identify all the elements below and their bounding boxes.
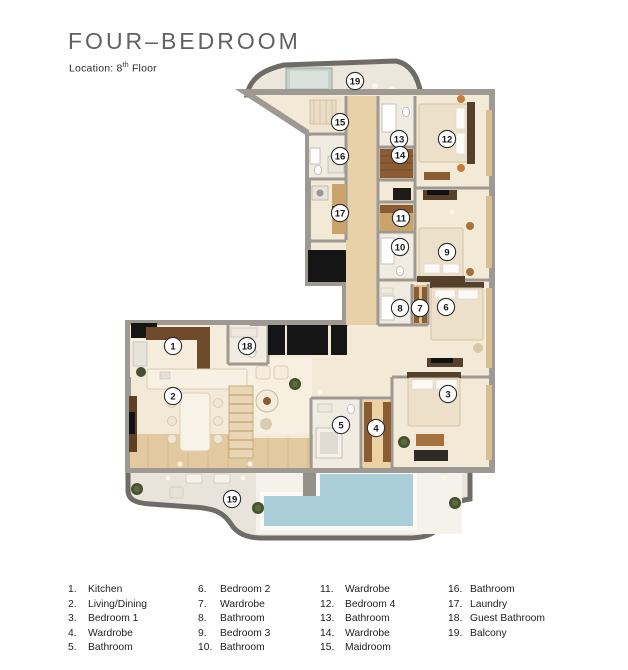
svg-text:13: 13	[394, 134, 405, 145]
legend-item-number: 18.	[448, 612, 470, 627]
sink	[231, 328, 257, 337]
svg-text:16: 16	[335, 151, 346, 162]
svg-text:8: 8	[397, 303, 402, 314]
floor-plan-page: FOUR–BEDROOM Location: 8th Floor	[0, 0, 628, 670]
armchair	[256, 366, 270, 379]
legend-item-number: 16.	[448, 583, 470, 598]
curtain	[486, 110, 492, 176]
armchair	[274, 366, 288, 379]
legend-item-label: Bedroom 2	[220, 583, 270, 598]
legend-item: 14.Wardrobe	[320, 627, 395, 642]
curtain	[486, 385, 492, 460]
legend-item-label: Bedroom 3	[220, 627, 270, 642]
pouf	[260, 418, 272, 430]
legend-item-label: Wardrobe	[220, 598, 265, 613]
legend-item-number: 8.	[198, 612, 220, 627]
svg-text:17: 17	[335, 208, 346, 219]
legend-item-label: Wardrobe	[345, 627, 390, 642]
svg-text:6: 6	[443, 302, 448, 313]
legend-item-label: Wardrobe	[345, 583, 390, 598]
legend-item-label: Wardrobe	[88, 627, 133, 642]
dark-rug	[414, 450, 448, 461]
legend-item-number: 6.	[198, 583, 220, 598]
svg-text:4: 4	[373, 423, 379, 434]
legend-item-number: 12.	[320, 598, 345, 613]
service-shaft	[308, 250, 346, 282]
svg-text:19: 19	[227, 494, 238, 505]
legend-item: 5.Bathroom	[68, 641, 147, 656]
legend-item: 7.Wardrobe	[198, 598, 270, 613]
legend-item-number: 2.	[68, 598, 88, 613]
curtain	[486, 288, 492, 368]
legend-item: 4.Wardrobe	[68, 627, 147, 642]
lounger	[186, 474, 202, 483]
room-marker-16: 16	[331, 147, 348, 164]
lamp	[457, 95, 465, 103]
legend-item: 19.Balcony	[448, 627, 545, 642]
svg-text:3: 3	[445, 389, 450, 400]
legend-item-label: Living/Dining	[88, 598, 147, 613]
legend-item: 3.Bedroom 1	[68, 612, 147, 627]
legend-item: 2.Living/Dining	[68, 598, 147, 613]
room-marker-11: 11	[392, 209, 409, 226]
legend-column-3: 11.Wardrobe12.Bedroom 413.Bathroom14.War…	[320, 583, 395, 656]
legend-item-number: 19.	[448, 627, 470, 642]
room-marker-8: 8	[391, 299, 408, 316]
legend-column-4: 16.Bathroom17.Laundry18.Guest Bathroom19…	[448, 583, 545, 641]
legend-item-label: Maidroom	[345, 641, 391, 656]
legend-item-label: Bathroom	[220, 612, 265, 627]
room-marker-2: 2	[164, 387, 181, 404]
legend-item: 18.Guest Bathroom	[448, 612, 545, 627]
legend-item-label: Bathroom	[220, 641, 265, 656]
svg-text:14: 14	[395, 150, 406, 161]
lounger	[214, 474, 230, 483]
legend-item-number: 4.	[68, 627, 88, 642]
room-marker-3: 3	[439, 385, 456, 402]
legend-item-label: Balcony	[470, 627, 507, 642]
svg-text:19: 19	[350, 76, 361, 87]
svg-text:18: 18	[242, 341, 253, 352]
svg-text:1: 1	[170, 341, 176, 352]
dining-table	[180, 393, 210, 451]
legend-item: 15.Maidroom	[320, 641, 395, 656]
balcony-table	[170, 487, 183, 498]
legend-item: 13.Bathroom	[320, 612, 395, 627]
legend-item: 9.Bedroom 3	[198, 627, 270, 642]
legend-item-number: 10.	[198, 641, 220, 656]
room-marker-15: 15	[331, 113, 348, 130]
room-marker-13: 13	[390, 130, 407, 147]
svg-text:9: 9	[444, 247, 449, 258]
room-marker-14: 14	[391, 146, 408, 163]
curtain	[486, 196, 492, 268]
room-marker-4: 4	[367, 419, 384, 436]
legend-item: 10.Bathroom	[198, 641, 270, 656]
legend-item-label: Bedroom 1	[88, 612, 138, 627]
legend-item-label: Bathroom	[470, 583, 515, 598]
room-marker-19: 19	[346, 72, 363, 89]
room-marker-7: 7	[411, 299, 428, 316]
legend-item-label: Laundry	[470, 598, 507, 613]
legend-item-number: 3.	[68, 612, 88, 627]
legend-item-number: 5.	[68, 641, 88, 656]
legend-item: 12.Bedroom 4	[320, 598, 395, 613]
svg-text:10: 10	[395, 242, 406, 253]
legend-item-label: Bathroom	[88, 641, 133, 656]
lamp	[457, 164, 465, 172]
hall-dresser	[393, 188, 411, 200]
svg-text:7: 7	[417, 303, 422, 314]
legend-item-label: Guest Bathroom	[470, 612, 545, 627]
legend-item: 17.Laundry	[448, 598, 545, 613]
svg-text:5: 5	[338, 420, 344, 431]
svg-text:2: 2	[170, 391, 175, 402]
legend-item-number: 11.	[320, 583, 345, 598]
room-marker-18: 18	[238, 337, 255, 354]
room-marker-9: 9	[438, 243, 455, 260]
legend-item: 6.Bedroom 2	[198, 583, 270, 598]
floor-plan-image: 1234567891011121314151617181919	[0, 0, 628, 670]
room-marker-5: 5	[332, 416, 349, 433]
legend-item-number: 13.	[320, 612, 345, 627]
room-marker-12: 12	[438, 130, 455, 147]
legend-item-label: Kitchen	[88, 583, 122, 598]
legend-item-number: 1.	[68, 583, 88, 598]
legend-item: 1.Kitchen	[68, 583, 147, 598]
kitchen-counter	[146, 327, 210, 340]
legend-item-number: 14.	[320, 627, 345, 642]
legend-item: 11.Wardrobe	[320, 583, 395, 598]
legend-item-label: Bedroom 4	[345, 598, 395, 613]
legend-column-2: 6.Bedroom 27.Wardrobe8.Bathroom9.Bedroom…	[198, 583, 270, 656]
corridor-floor	[346, 96, 378, 325]
svg-text:15: 15	[335, 117, 346, 128]
svg-text:12: 12	[442, 134, 453, 145]
room-marker-17: 17	[331, 204, 348, 221]
legend-item-number: 7.	[198, 598, 220, 613]
room-marker-10: 10	[391, 238, 408, 255]
legend-item-number: 9.	[198, 627, 220, 642]
legend-item-number: 17.	[448, 598, 470, 613]
legend-item-number: 15.	[320, 641, 345, 656]
room-marker-19: 19	[223, 490, 240, 507]
room-marker-1: 1	[164, 337, 181, 354]
chest	[416, 434, 444, 446]
plant	[136, 367, 146, 377]
legend-item-label: Bathroom	[345, 612, 390, 627]
legend-column-1: 1.Kitchen2.Living/Dining3.Bedroom 14.War…	[68, 583, 147, 656]
room-marker-6: 6	[437, 298, 454, 315]
svg-text:11: 11	[396, 213, 407, 224]
bathtub	[382, 104, 396, 132]
legend-item: 8.Bathroom	[198, 612, 270, 627]
legend-item: 16.Bathroom	[448, 583, 545, 598]
